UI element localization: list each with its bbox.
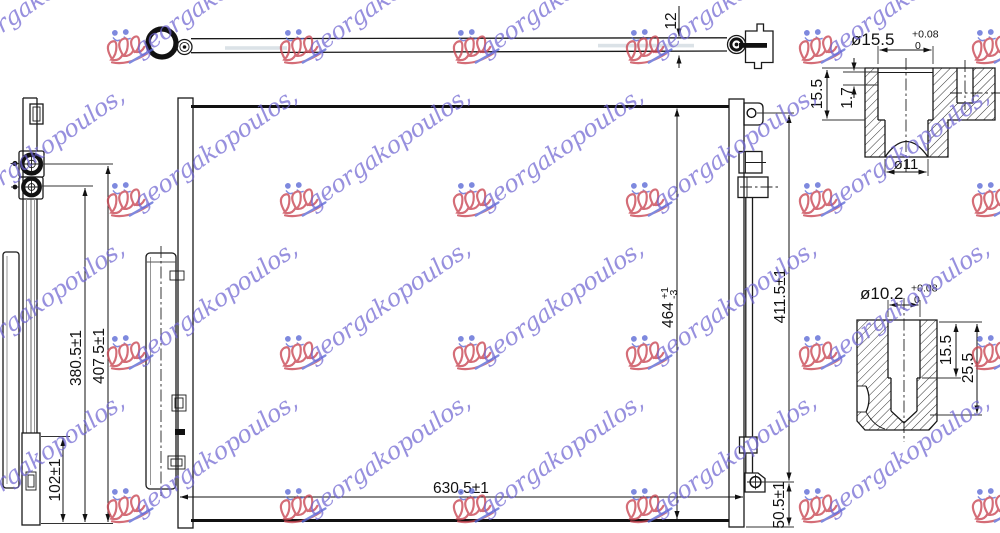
bottle-clamp	[172, 395, 186, 411]
watermark-text: georgakopoulos,	[646, 235, 821, 369]
watermark-text: georgakopoulos,	[992, 235, 1000, 369]
watermark-text: georgakopoulos,	[127, 82, 302, 216]
watermark-text: georgakopoulos,	[127, 0, 302, 63]
watermark-text: georgakopoulos,	[992, 388, 1000, 522]
watermark-text: georgakopoulos,	[127, 235, 302, 369]
pipe-left-fitting-center	[183, 45, 187, 49]
dim-50-label: 50.5±1	[771, 481, 788, 528]
bottom-mount-bracket	[745, 473, 765, 492]
dim-464-tol-minus: -3	[668, 290, 680, 299]
bore-white	[878, 68, 933, 120]
dim-380-label: 380.5±1	[68, 330, 85, 386]
dim-17-label: 1.7	[839, 87, 856, 109]
watermark-layer: georgakopoulos,georgakopoulos,georgakopo…	[0, 0, 1000, 526]
side-drier-bottle	[3, 252, 19, 488]
watermark-text: georgakopoulos,	[473, 235, 648, 369]
watermark-text: georgakopoulos,	[819, 0, 994, 63]
bottle-clamp	[170, 271, 184, 280]
drawing-svg: 12 102	[0, 0, 1000, 533]
dim-464-label: 464	[660, 302, 677, 328]
dim-dia155-tol-zero: 0	[915, 40, 921, 52]
watermark-text: georgakopoulos,	[646, 388, 821, 522]
watermark-text: georgakopoulos,	[300, 82, 475, 216]
dim-dia155-tol-plus: +0.08	[912, 29, 939, 41]
watermark-text: georgakopoulos,	[473, 0, 648, 63]
dim-407-label: 407.5±1	[91, 328, 108, 384]
pipe-highlight	[225, 46, 287, 50]
watermark-text: georgakopoulos,	[300, 0, 475, 63]
technical-drawing: 12 102	[0, 0, 1000, 533]
pipe-right-joint-center	[735, 43, 739, 47]
pipe-end-pin	[739, 43, 767, 48]
dim-155b-label: 15.5	[938, 335, 955, 365]
watermark-text: georgakopoulos,	[473, 388, 648, 522]
watermark-text: georgakopoulos,	[646, 82, 821, 216]
dim-464-label-group: 464 +1 -3	[659, 287, 680, 328]
watermark-text: georgakopoulos,	[300, 388, 475, 522]
watermark-text: georgakopoulos,	[473, 82, 648, 216]
watermark-text: georgakopoulos,	[300, 235, 475, 369]
watermark-text: georgakopoulos,	[127, 388, 302, 522]
bottle-clip	[175, 429, 185, 435]
